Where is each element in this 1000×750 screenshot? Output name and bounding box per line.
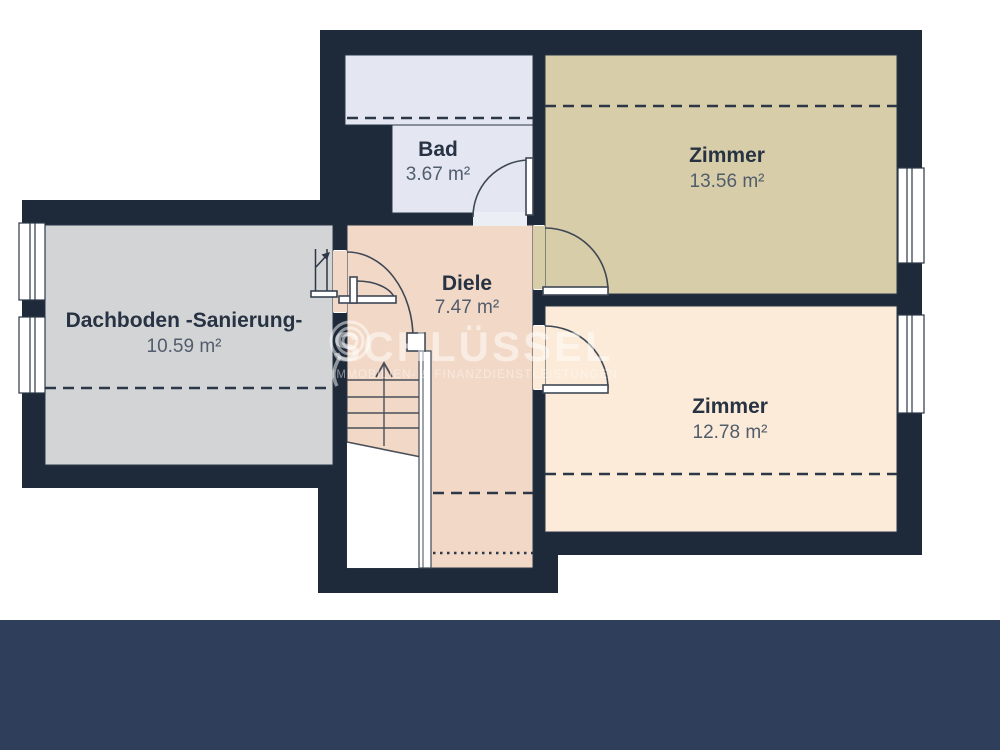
room-label-diele: Diele xyxy=(442,272,492,295)
window-left-1 xyxy=(19,223,45,300)
watermark-brand: SCHLÜSSEL xyxy=(332,323,613,370)
room-area-zimmer-bottom: 12.78 m² xyxy=(693,422,768,443)
window-left-2 xyxy=(19,317,45,393)
title-banner: Grundriss - Dachgeschoss ohne Gewähr - D… xyxy=(0,620,1000,750)
room-label-zimmer-top: Zimmer xyxy=(689,144,765,167)
room-label-zimmer-bottom: Zimmer xyxy=(692,395,768,418)
watermark: SCHLÜSSEL IMMOBILIEN- & FINANZDIENSTLEIS… xyxy=(331,322,618,386)
stairs-void xyxy=(347,442,421,568)
room-area-zimmer-top: 13.56 m² xyxy=(690,171,765,192)
floorplan-page: Bad 3.67 m² Zimmer 13.56 m² Diele 7.47 m… xyxy=(0,0,1000,750)
stairs-railing xyxy=(419,351,431,568)
room-area-bad: 3.67 m² xyxy=(406,164,470,185)
room-area-diele: 7.47 m² xyxy=(435,297,499,318)
window-right-1 xyxy=(898,168,924,263)
room-label-bad: Bad xyxy=(418,138,458,161)
floorplan-drawing: Bad 3.67 m² Zimmer 13.56 m² Diele 7.47 m… xyxy=(0,0,1000,620)
watermark-tagline: IMMOBILIEN- & FINANZDIENSTLEISTUNGEN xyxy=(332,369,618,381)
room-label-dachboden: Dachboden -Sanierung- xyxy=(66,309,303,332)
room-bad-upper xyxy=(345,55,533,125)
window-right-2 xyxy=(898,315,924,413)
room-area-dachboden: 10.59 m² xyxy=(147,336,222,357)
